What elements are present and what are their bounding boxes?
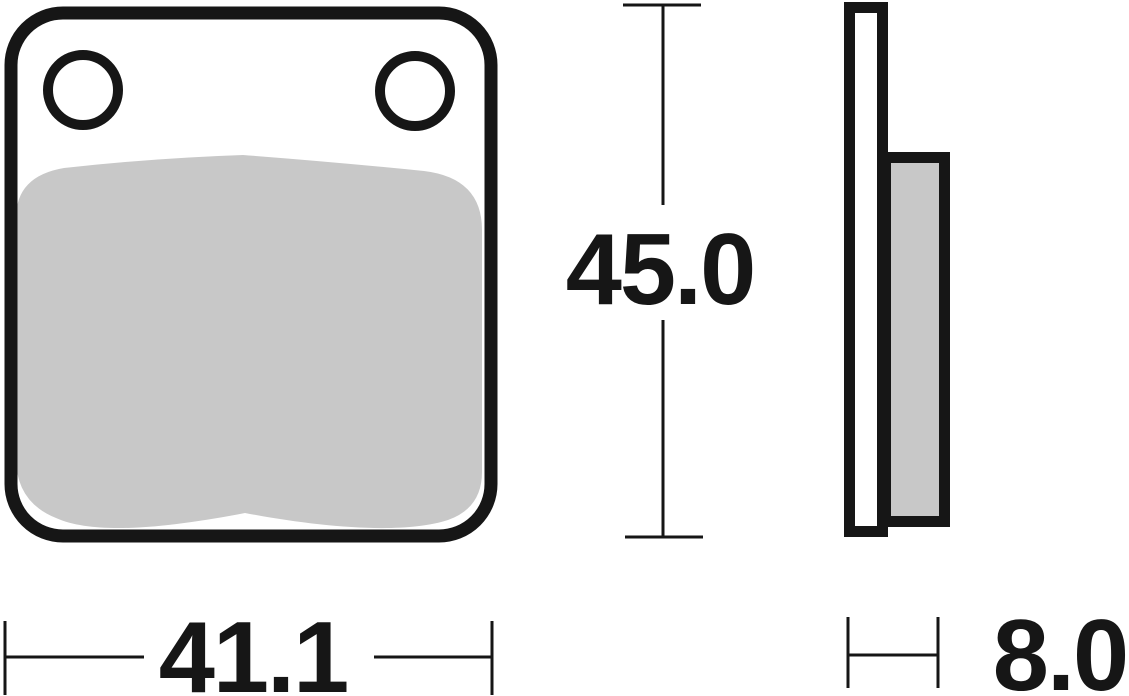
- friction-material-side: [886, 158, 945, 522]
- mounting-hole-right: [380, 56, 450, 126]
- height-dimension: 45.0: [566, 5, 755, 537]
- brake-pad-technical-drawing: 45.0 41.1 8.0: [0, 0, 1129, 696]
- height-dimension-label: 45.0: [566, 214, 755, 326]
- thickness-dimension: 8.0: [848, 600, 1127, 696]
- friction-material-front: [16, 155, 482, 528]
- mounting-hole-left: [48, 55, 118, 125]
- brake-pad-front-view: [11, 13, 491, 536]
- backing-plate-side: [850, 8, 883, 532]
- thickness-dimension-label: 8.0: [993, 600, 1127, 696]
- width-dimension-label: 41.1: [159, 602, 348, 696]
- width-dimension: 41.1: [5, 602, 492, 696]
- brake-pad-side-view: [850, 8, 945, 532]
- drawing-canvas: 45.0 41.1 8.0: [0, 0, 1129, 696]
